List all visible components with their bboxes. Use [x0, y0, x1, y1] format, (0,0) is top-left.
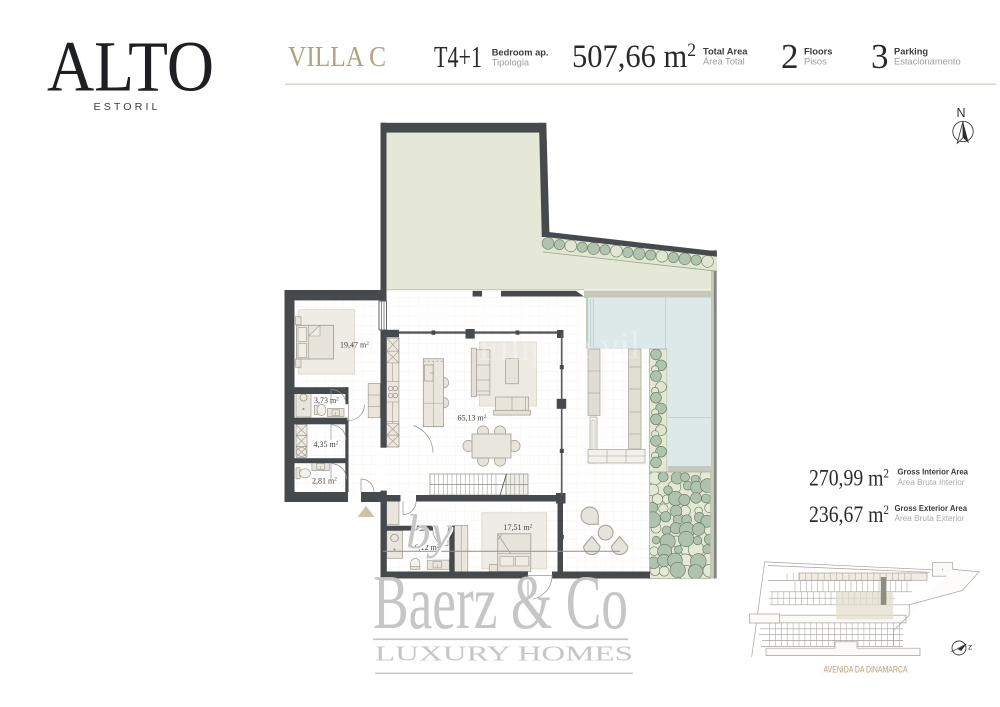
svg-text:Área Bruta Exterior: Área Bruta Exterior	[895, 513, 965, 523]
svg-text:Pisos: Pisos	[804, 57, 827, 67]
svg-text:Total Area: Total Area	[703, 47, 748, 57]
svg-text:270,99 m2: 270,99 m2	[809, 466, 889, 491]
svg-text:507,66 m2: 507,66 m2	[572, 39, 696, 75]
svg-text:4,35 m2: 4,35 m2	[314, 440, 339, 449]
svg-text:ALTO: ALTO	[47, 27, 214, 107]
svg-text:VILLA C: VILLA C	[288, 42, 386, 73]
svg-text:65,13 m2: 65,13 m2	[458, 414, 487, 423]
svg-text:Baerz & Co: Baerz & Co	[373, 559, 628, 645]
svg-text:LUXURY HOMES: LUXURY HOMES	[375, 642, 633, 666]
svg-text:Gross Interior Area: Gross Interior Area	[898, 467, 969, 477]
svg-text:T4+1: T4+1	[434, 39, 482, 74]
svg-text:17,51 m2: 17,51 m2	[504, 523, 533, 532]
svg-text:Tipologia: Tipologia	[492, 58, 530, 68]
svg-text:AVENIDA DA DINAMARCA: AVENIDA DA DINAMARCA	[824, 665, 908, 675]
svg-text:Parking: Parking	[894, 47, 928, 57]
svg-text:236,67 m2: 236,67 m2	[809, 502, 889, 527]
svg-text:Filip: Filip	[478, 327, 550, 369]
svg-text:19,47 m2: 19,47 m2	[340, 341, 369, 350]
svg-text:ESTORIL: ESTORIL	[94, 101, 161, 113]
svg-text:3,73 m2: 3,73 m2	[314, 396, 339, 405]
svg-text:2,81 m2: 2,81 m2	[312, 476, 337, 485]
svg-text:by: by	[406, 504, 453, 559]
svg-text:Floors: Floors	[804, 47, 832, 57]
svg-text:2: 2	[781, 37, 799, 76]
svg-text:N: N	[957, 106, 966, 120]
svg-text:Gross Exterior Area: Gross Exterior Area	[895, 503, 968, 513]
svg-text:e vil: e vil	[574, 325, 640, 367]
svg-text:Estacionamento: Estacionamento	[894, 57, 961, 67]
svg-text:3: 3	[871, 37, 889, 76]
svg-text:z: z	[968, 642, 972, 652]
svg-text:Bedroom ap.: Bedroom ap.	[492, 48, 549, 58]
svg-text:Área Bruta Interior: Área Bruta Interior	[898, 477, 965, 487]
svg-text:Área Total: Área Total	[703, 57, 745, 67]
